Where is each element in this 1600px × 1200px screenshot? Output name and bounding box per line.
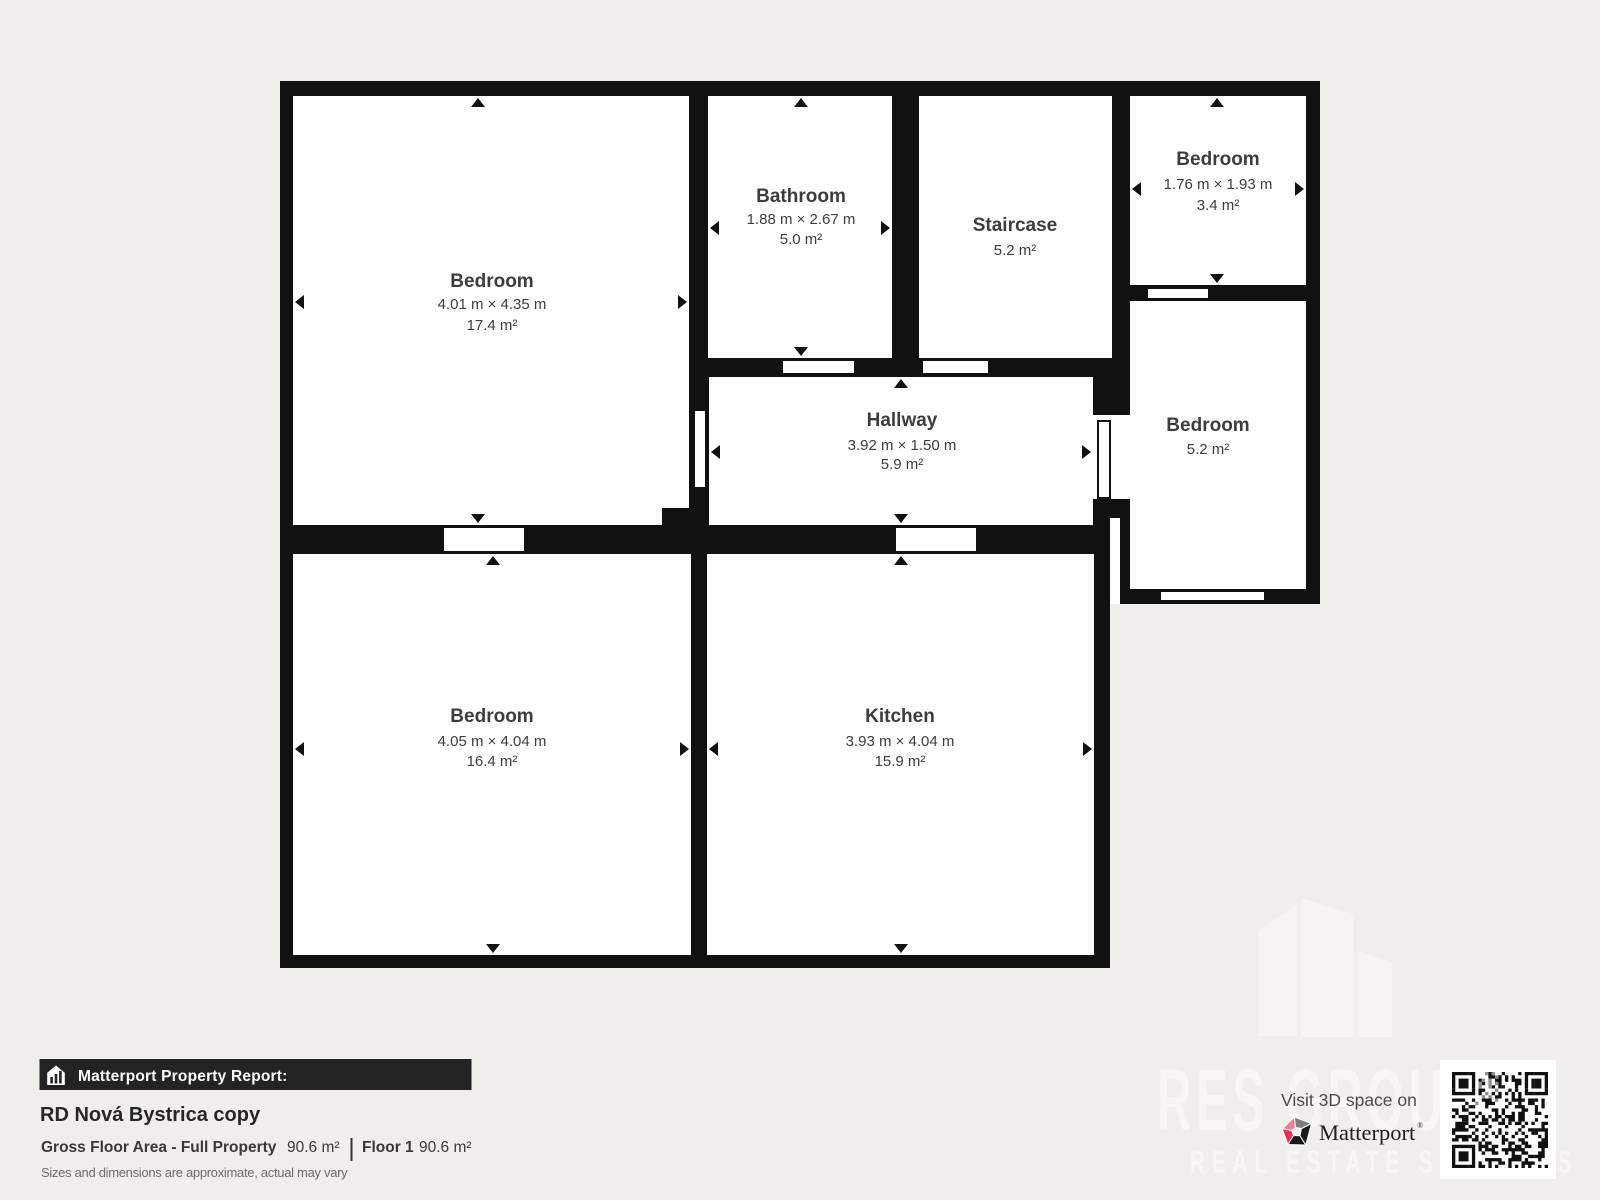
- svg-text:1.76 m × 1.93 m: 1.76 m × 1.93 m: [1164, 176, 1273, 193]
- svg-text:Hallway: Hallway: [867, 410, 938, 431]
- svg-text:5.0 m²: 5.0 m²: [780, 231, 823, 248]
- svg-text:Gross Floor Area - Full Proper: Gross Floor Area - Full Property90.6 m²F…: [41, 1139, 472, 1156]
- svg-text:Bedroom: Bedroom: [1166, 415, 1249, 436]
- svg-text:RD Nová Bystrica copy: RD Nová Bystrica copy: [40, 1104, 261, 1126]
- svg-text:3.93 m × 4.04 m: 3.93 m × 4.04 m: [846, 733, 955, 750]
- svg-text:Bedroom: Bedroom: [450, 706, 533, 727]
- svg-text:4.01 m × 4.35 m: 4.01 m × 4.35 m: [438, 296, 547, 313]
- svg-text:Visit 3D space on: Visit 3D space on: [1281, 1090, 1417, 1110]
- svg-text:5.2 m²: 5.2 m²: [1187, 441, 1230, 458]
- svg-text:®: ®: [1417, 1121, 1423, 1130]
- svg-text:Sizes and dimensions are appro: Sizes and dimensions are approximate, ac…: [41, 1165, 348, 1180]
- svg-text:3.4 m²: 3.4 m²: [1197, 197, 1240, 214]
- svg-text:Kitchen: Kitchen: [865, 706, 935, 727]
- svg-text:5.2 m²: 5.2 m²: [994, 242, 1037, 259]
- svg-text:1.88 m × 2.67 m: 1.88 m × 2.67 m: [747, 211, 856, 228]
- svg-text:5.9 m²: 5.9 m²: [881, 456, 924, 473]
- svg-text:3.92 m × 1.50 m: 3.92 m × 1.50 m: [848, 437, 957, 454]
- svg-text:Bedroom: Bedroom: [450, 271, 533, 292]
- svg-text:Bathroom: Bathroom: [756, 186, 846, 207]
- svg-text:4.05 m × 4.04 m: 4.05 m × 4.04 m: [438, 733, 547, 750]
- svg-text:17.4 m²: 17.4 m²: [467, 317, 518, 334]
- svg-text:16.4 m²: 16.4 m²: [467, 753, 518, 770]
- svg-text:15.9 m²: 15.9 m²: [875, 753, 926, 770]
- svg-text:Matterport: Matterport: [1319, 1120, 1416, 1145]
- svg-text:Bedroom: Bedroom: [1176, 149, 1259, 170]
- svg-text:Staircase: Staircase: [973, 215, 1058, 236]
- svg-text:Matterport Property Report:: Matterport Property Report:: [78, 1068, 288, 1085]
